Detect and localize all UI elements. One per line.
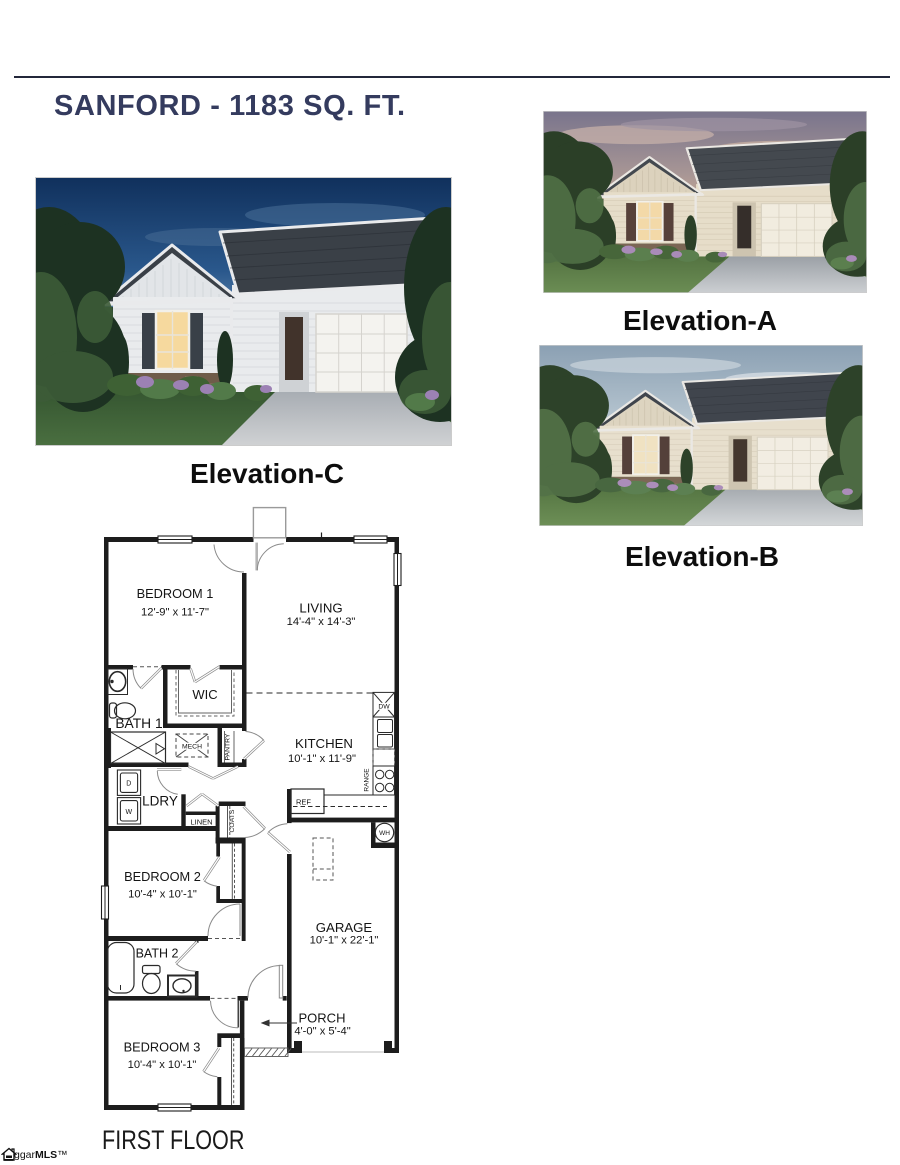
svg-text:10'-1" x 22'-1": 10'-1" x 22'-1" (310, 935, 379, 947)
svg-text:W: W (125, 809, 132, 816)
svg-text:BATH 2: BATH 2 (136, 947, 179, 961)
svg-text:LIVING: LIVING (299, 601, 342, 616)
svg-text:12'-9" x 11'-7": 12'-9" x 11'-7" (141, 607, 209, 619)
svg-text:BEDROOM 3: BEDROOM 3 (124, 1040, 201, 1055)
svg-text:4'-0" x 5'-4": 4'-0" x 5'-4" (294, 1026, 350, 1038)
svg-text:WIC: WIC (192, 687, 217, 702)
svg-text:REF: REF (296, 798, 311, 807)
svg-text:COATS: COATS (229, 809, 236, 832)
svg-text:KITCHEN: KITCHEN (295, 736, 353, 751)
svg-text:10'-4" x 10'-1": 10'-4" x 10'-1" (128, 889, 197, 901)
svg-text:PANTRY: PANTRY (225, 733, 232, 760)
svg-text:PORCH: PORCH (299, 1011, 346, 1026)
svg-text:GARAGE: GARAGE (316, 920, 373, 935)
svg-text:BATH 1: BATH 1 (115, 716, 162, 731)
svg-text:BEDROOM 1: BEDROOM 1 (137, 586, 214, 601)
svg-text:MECH: MECH (182, 744, 202, 751)
svg-text:BEDROOM 2: BEDROOM 2 (124, 869, 201, 884)
svg-text:10'-1" x 11'-9": 10'-1" x 11'-9" (288, 753, 356, 765)
svg-text:RANGE: RANGE (364, 768, 371, 792)
svg-text:D: D (126, 781, 131, 788)
svg-text:WH: WH (379, 830, 390, 837)
svg-text:LINEN: LINEN (190, 818, 212, 827)
svg-text:10'-4" x 10'-1": 10'-4" x 10'-1" (128, 1059, 197, 1071)
svg-text:14'-4" x 14'-3": 14'-4" x 14'-3" (287, 616, 356, 628)
svg-text:DW: DW (378, 704, 390, 711)
svg-text:LDRY: LDRY (142, 794, 178, 809)
